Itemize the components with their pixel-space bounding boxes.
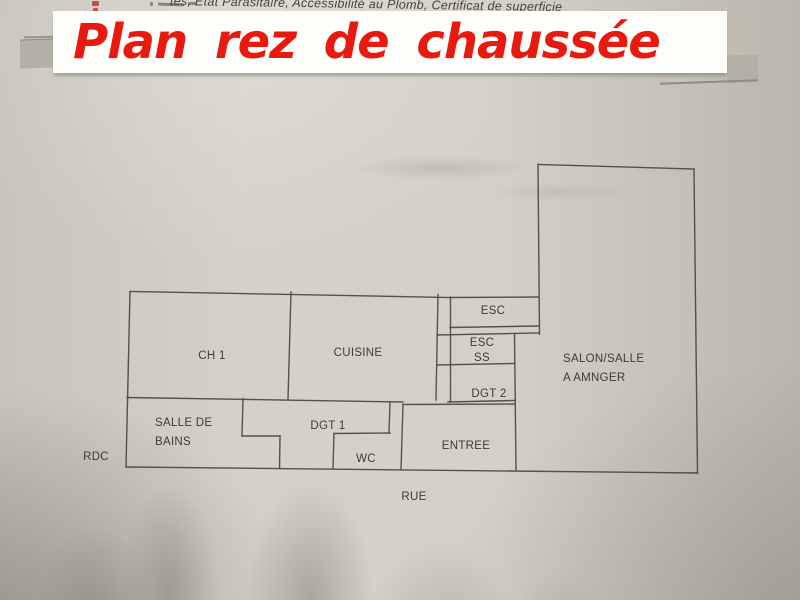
photographed-document: tes, Etat Parasitaire, Accessibilité au …	[0, 0, 800, 600]
room-label-salle-de-bains: SALLE DE BAINS	[155, 414, 212, 452]
room-label-esc-ss: ESC SS	[452, 336, 512, 366]
room-label-esc-ss-line2: SS	[452, 351, 512, 366]
title-banner: Plan rez de chaussée	[53, 11, 727, 73]
room-label-wc: WC	[356, 453, 376, 465]
floor-label-rdc: RDC	[83, 451, 109, 463]
photo-shading-overlay	[0, 0, 800, 600]
gray-tab-left	[20, 38, 54, 68]
floor-plan-drawing	[0, 0, 800, 600]
room-label-dgt2: DGT 2	[471, 388, 506, 400]
room-label-sdb-line1: SALLE DE	[155, 414, 212, 433]
room-label-salon: SALON/SALLE A AMNGER	[563, 350, 644, 388]
room-label-sdb-line2: BAINS	[155, 433, 212, 452]
room-label-salon-line1: SALON/SALLE	[563, 350, 644, 369]
street-label-rue: RUE	[401, 491, 426, 503]
room-label-ch1: CH 1	[198, 350, 225, 362]
logo-fragment-icon	[92, 1, 99, 6]
room-label-esc: ESC	[481, 305, 506, 317]
ink-mark	[188, 2, 196, 5]
room-label-cuisine: CUISINE	[334, 347, 383, 359]
ink-mark	[150, 2, 153, 6]
room-label-dgt1: DGT 1	[310, 420, 345, 432]
page-title: Plan rez de chaussée	[53, 11, 660, 73]
room-label-esc-ss-line1: ESC	[452, 336, 512, 351]
ink-mark	[158, 3, 184, 7]
room-label-entree: ENTREE	[442, 440, 490, 452]
room-label-salon-line2: A AMNGER	[563, 369, 644, 388]
